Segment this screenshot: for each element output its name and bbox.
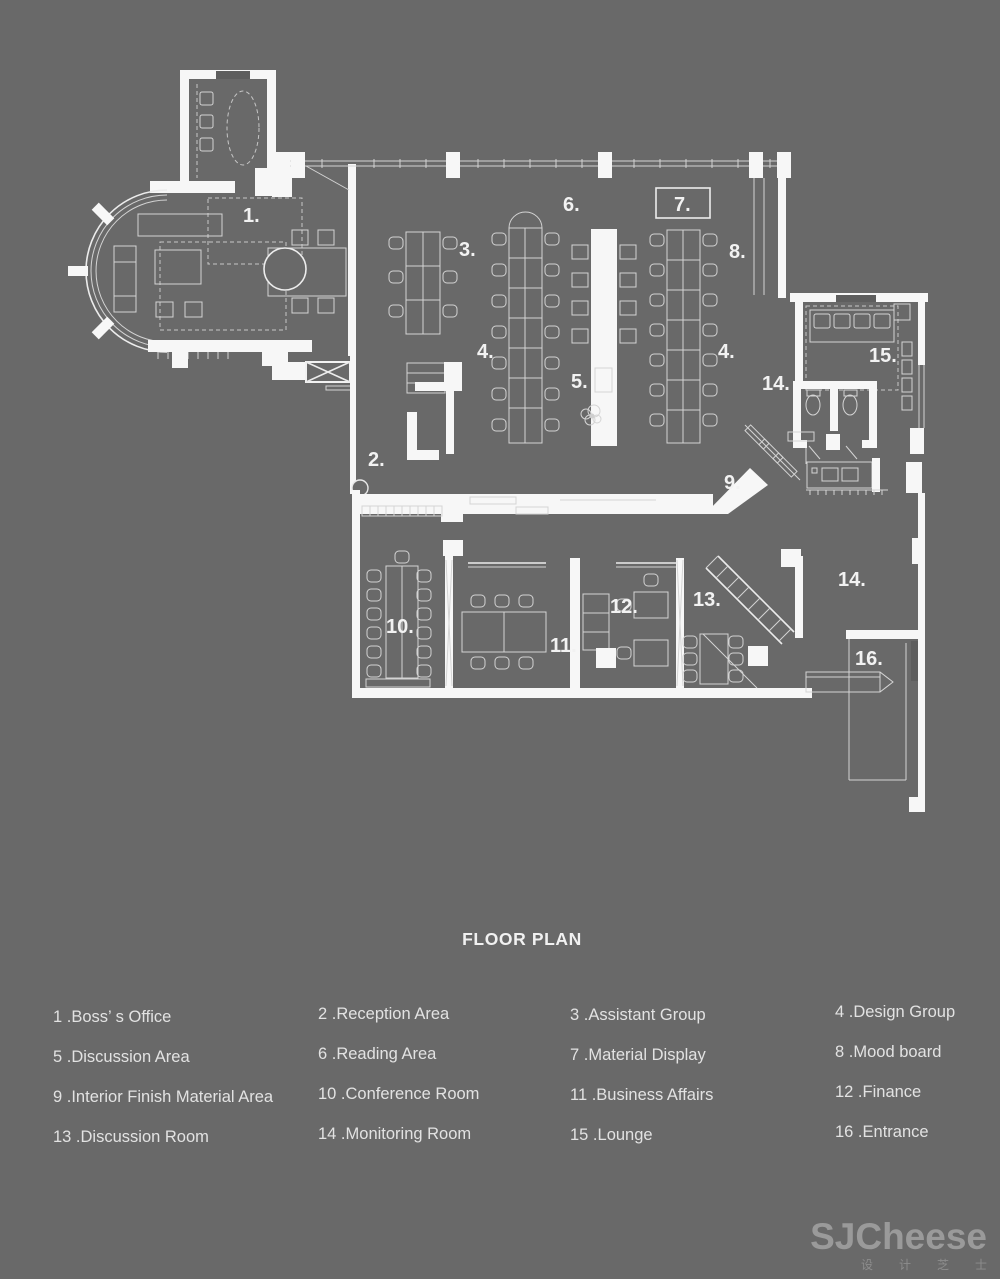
legend-item: 1 .Boss’ s Office [53, 1008, 273, 1048]
legend-column-3: 3 .Assistant Group 7 .Material Display 1… [570, 1006, 713, 1166]
pantry-counter [806, 458, 888, 495]
legend-item: 5 .Discussion Area [53, 1048, 273, 1088]
legend-column-1: 1 .Boss’ s Office 5 .Discussion Area 9 .… [53, 1008, 273, 1168]
floor-plan-drawing: 1. 2. 3. 4. 4. 5. 6. 7. 8. 9. 10. 11. 12… [0, 0, 1000, 900]
legend-item: 6 .Reading Area [318, 1045, 479, 1085]
room-label-9: 9. [724, 472, 741, 494]
watermark-brand: SJCheese [810, 1218, 987, 1255]
room-label-14b: 14. [838, 569, 866, 591]
corridor [353, 468, 768, 522]
room-discussion [683, 549, 801, 688]
room-business-affairs [462, 595, 546, 669]
discussion-counter [572, 229, 636, 446]
design-group-desk-right [650, 230, 717, 443]
toilets [788, 381, 877, 464]
legend-item: 9 .Interior Finish Material Area [53, 1088, 273, 1128]
legend-item: 12 .Finance [835, 1083, 955, 1123]
legend-item: 14 .Monitoring Room [318, 1125, 479, 1165]
toilet [806, 395, 820, 415]
legend-column-4: 4 .Design Group 8 .Mood board 12 .Financ… [835, 1003, 955, 1163]
legend-item: 16 .Entrance [835, 1123, 955, 1163]
room-label-2: 2. [368, 449, 385, 471]
boss-desk [138, 214, 222, 236]
rug [160, 242, 286, 330]
room-label-13: 13. [693, 589, 721, 611]
poster: 1. 2. 3. 4. 4. 5. 6. 7. 8. 9. 10. 11. 12… [0, 0, 1000, 1279]
room-label-4a: 4. [477, 341, 494, 363]
bathroom [150, 70, 292, 197]
room-label-15: 15. [869, 345, 897, 367]
room-reception [352, 362, 462, 496]
design-group-desk-left [492, 212, 559, 443]
bathroom-door-gap [216, 71, 250, 79]
toilet [843, 395, 857, 415]
room-finance [583, 574, 668, 668]
round-table [264, 248, 306, 290]
room-label-14a: 14. [762, 373, 790, 395]
sofa [810, 310, 894, 342]
entrance-door [911, 641, 918, 681]
watermark-caption: 设计芝士 [810, 1256, 1000, 1273]
bathtub [227, 91, 259, 165]
room-label-4b: 4. [718, 341, 735, 363]
lounge-door-gap [836, 295, 876, 302]
legend-item: 3 .Assistant Group [570, 1006, 713, 1046]
legend-item: 10 .Conference Room [318, 1085, 479, 1125]
legend-item: 13 .Discussion Room [53, 1128, 273, 1168]
room-label-10: 10. [386, 616, 414, 638]
room-label-12: 12. [610, 596, 638, 618]
page-title: FLOOR PLAN [22, 929, 1000, 950]
open-office-shell [290, 152, 791, 298]
legend-item: 8 .Mood board [835, 1043, 955, 1083]
bottom-wing-shell [352, 490, 812, 698]
assistant-group-desk [389, 232, 457, 334]
room-label-6: 6. [563, 194, 580, 216]
room-label-8: 8. [729, 241, 746, 263]
legend-item: 4 .Design Group [835, 1003, 955, 1043]
legend-item: 11 .Business Affairs [570, 1086, 713, 1126]
room-label-11: 11. [550, 635, 577, 657]
legend-column-2: 2 .Reception Area 6 .Reading Area 10 .Co… [318, 1005, 479, 1165]
room-boss-office [68, 164, 356, 494]
watermark: SJCheese 设计芝士 [810, 1218, 987, 1273]
east-wall [906, 293, 925, 812]
room-label-3: 3. [459, 239, 476, 261]
room-label-16: 16. [855, 648, 883, 670]
room-label-1: 1. [243, 205, 260, 227]
sofa [114, 246, 136, 312]
room-label-7: 7. [674, 194, 691, 216]
coffee-table [155, 250, 201, 284]
legend-item: 2 .Reception Area [318, 1005, 479, 1045]
legend-item: 15 .Lounge [570, 1126, 713, 1166]
room-label-5: 5. [571, 371, 588, 393]
room-lounge [790, 293, 928, 410]
legend-item: 7 .Material Display [570, 1046, 713, 1086]
